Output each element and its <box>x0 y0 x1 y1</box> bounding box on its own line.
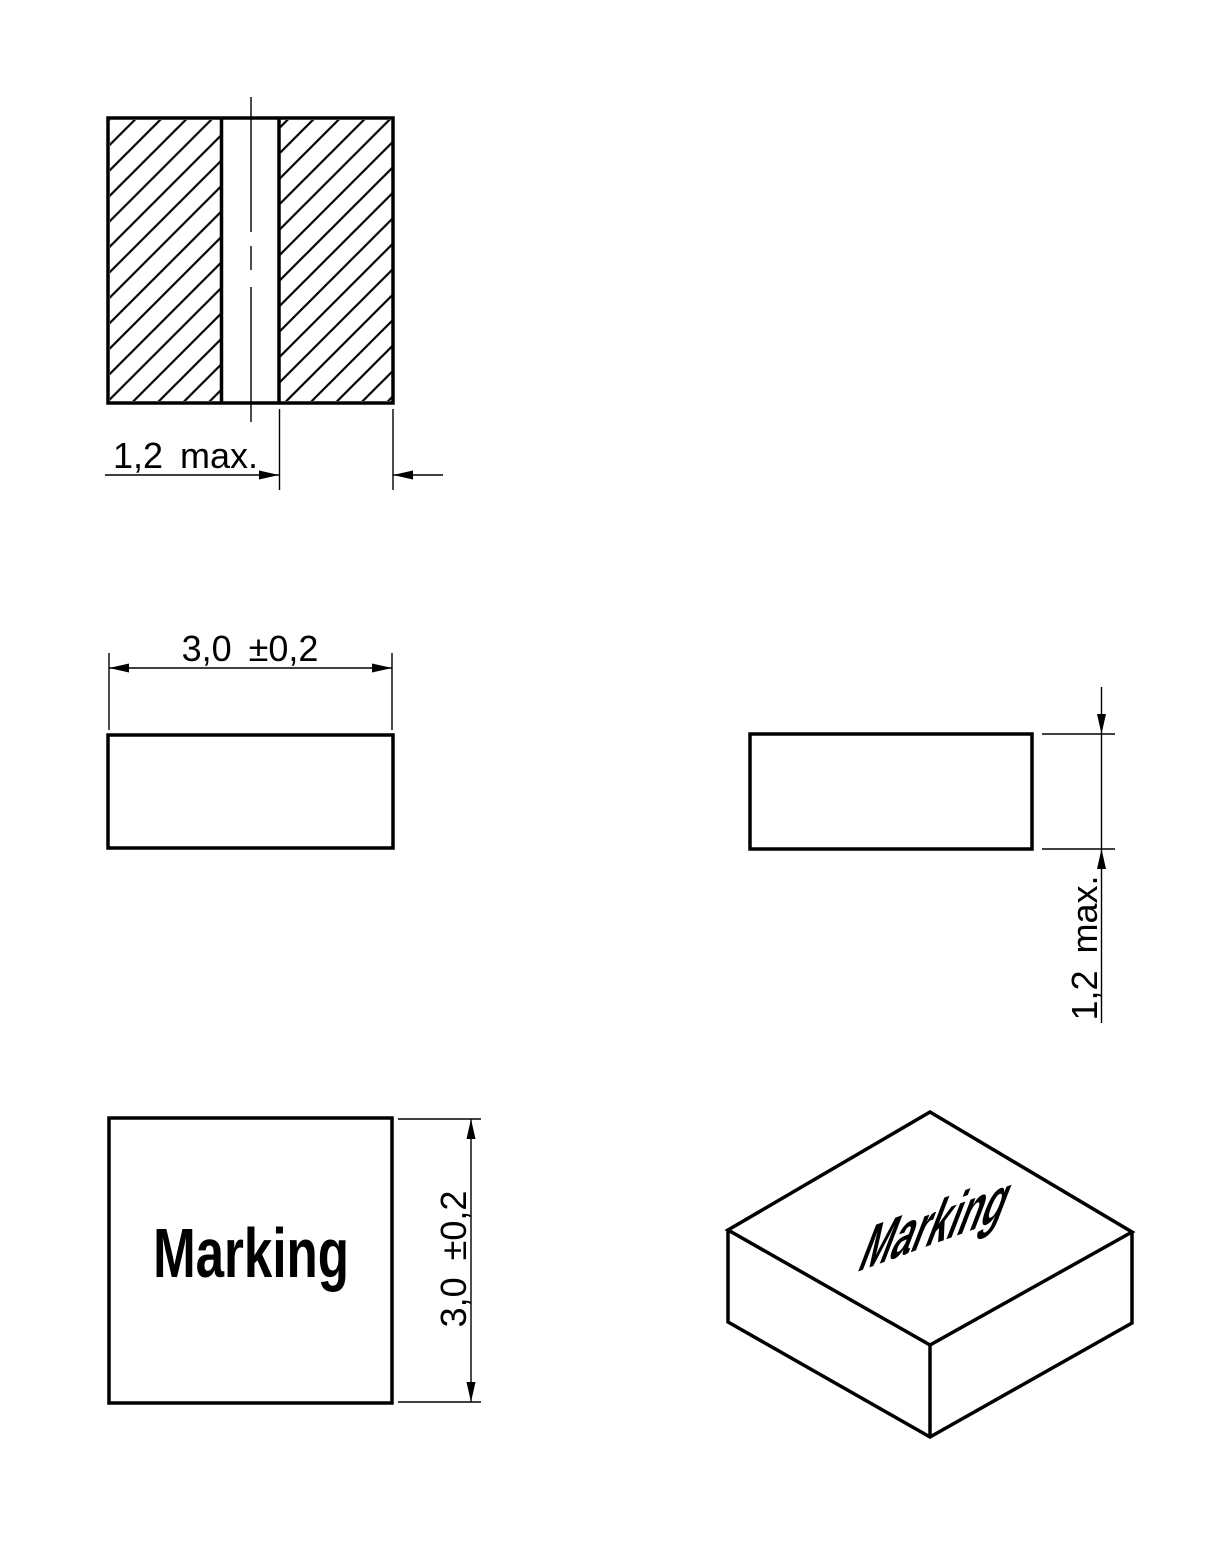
arrowhead-up-icon <box>467 1119 476 1139</box>
arrowhead-down-icon <box>1097 714 1106 734</box>
section-view: 1,2 max. <box>105 97 443 490</box>
front-view: 3,0 ±0,2 <box>108 628 393 848</box>
arrowhead-left-icon <box>109 664 129 673</box>
side-outline <box>750 734 1032 849</box>
top-view: Marking 3,0 ±0,2 <box>109 1118 481 1403</box>
package-outline-drawing: 1,2 max. 3,0 ±0,2 1,2 max. Marking 3,0 ±… <box>0 0 1229 1558</box>
hatch-area-left <box>110 120 220 401</box>
technical-drawing-sheet: 1,2 max. 3,0 ±0,2 1,2 max. Marking 3,0 ±… <box>0 0 1229 1558</box>
marking-text: Marking <box>153 1214 349 1292</box>
dimension-label: 3,0 ±0,2 <box>182 628 319 669</box>
hatch-area-right <box>281 120 392 401</box>
arrowhead-right-icon <box>372 664 392 673</box>
dimension-label: 1,2 max. <box>113 435 258 476</box>
arrowhead-up-icon <box>1097 849 1106 869</box>
dimension-label: 3,0 ±0,2 <box>433 1191 474 1328</box>
front-outline <box>108 735 393 848</box>
dimension-label: 1,2 max. <box>1064 875 1105 1020</box>
arrowhead-left-icon <box>393 471 413 480</box>
side-view: 1,2 max. <box>750 687 1115 1023</box>
arrowhead-right-icon <box>259 471 279 480</box>
isometric-view: Marking <box>728 1112 1132 1437</box>
arrowhead-down-icon <box>467 1382 476 1402</box>
